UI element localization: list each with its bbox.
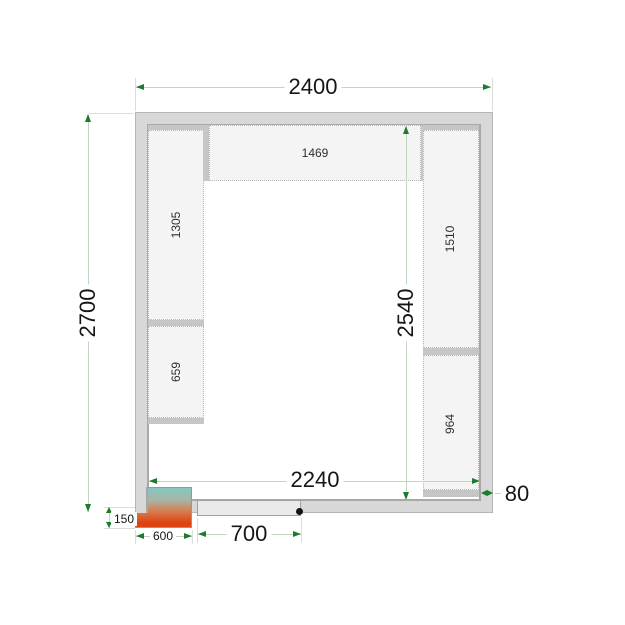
- dim-inner-depth-label: 2540: [394, 285, 418, 342]
- dim-unit-width-ext-right: [192, 530, 193, 544]
- shelf-right-lower-label: 964: [444, 414, 456, 434]
- floor-plan-canvas: 1469 1305 659 1510 964 2400 2700 2540 22…: [0, 0, 625, 625]
- dim-inner-width-arrow-left: [149, 478, 157, 484]
- dim-door-arrow-left: [198, 531, 206, 537]
- shelf-top-left-bracket: [203, 130, 209, 181]
- dim-wall-thickness-arrow-right: [487, 490, 493, 496]
- shelf-left-lower-label: 659: [170, 362, 182, 382]
- dim-unit-width-arrow-right: [184, 533, 192, 539]
- dim-unit-width-label: 600: [150, 529, 176, 543]
- dim-unit-protrusion-ext-bottom: [104, 528, 135, 529]
- dim-unit-protrusion-label: 150: [111, 512, 137, 526]
- door-pivot-dot: [296, 508, 303, 515]
- dim-outer-width-ext-left: [135, 78, 136, 111]
- dim-outer-width-label: 2400: [285, 75, 342, 99]
- dim-outer-width-arrow-right: [483, 84, 491, 90]
- dim-outer-depth-arrow-bottom: [85, 504, 91, 512]
- dim-inner-width-label: 2240: [287, 468, 344, 492]
- dim-outer-width-arrow-left: [136, 84, 144, 90]
- dim-inner-width-arrow-right: [472, 478, 480, 484]
- shelf-left-bottom-bar: [148, 418, 204, 424]
- shelf-top-label: 1469: [302, 147, 329, 159]
- shelf-right-upper-label: 1510: [444, 226, 456, 253]
- dim-door-arrow-right: [293, 531, 301, 537]
- dim-outer-width-ext-right: [492, 78, 493, 111]
- shelf-right-divider-bar: [423, 348, 479, 355]
- dim-wall-thickness-label: 80: [501, 482, 533, 506]
- dim-outer-depth-arrow-top: [85, 114, 91, 122]
- dim-outer-depth-ext-top: [89, 113, 134, 114]
- dim-inner-depth-arrow-top: [403, 126, 409, 134]
- wall-overlap-patch: [135, 487, 148, 513]
- shelf-right-bottom-bar: [423, 490, 479, 497]
- dim-door-ext-right: [301, 518, 302, 543]
- dim-door-label: 700: [227, 522, 272, 546]
- shelf-left-upper-label: 1305: [170, 212, 182, 239]
- dim-outer-depth-label: 2700: [76, 285, 100, 342]
- dim-inner-depth-arrow-bottom: [403, 492, 409, 500]
- door-leaf: [197, 500, 301, 516]
- dim-unit-width-arrow-left: [136, 533, 144, 539]
